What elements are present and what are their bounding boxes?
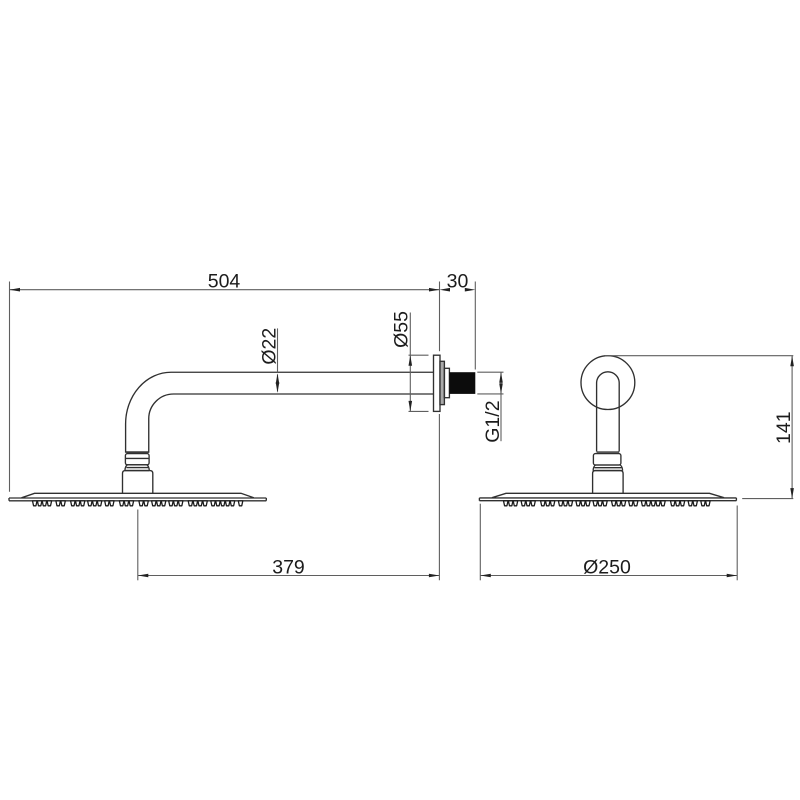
svg-text:Ø250: Ø250 [583,556,631,578]
svg-text:141: 141 [773,411,795,444]
svg-text:379: 379 [272,556,305,578]
svg-text:30: 30 [447,271,469,293]
svg-text:Ø55: Ø55 [391,311,413,348]
svg-text:504: 504 [208,271,241,293]
svg-text:Ø22: Ø22 [259,328,281,365]
svg-text:G1/2: G1/2 [482,400,504,442]
